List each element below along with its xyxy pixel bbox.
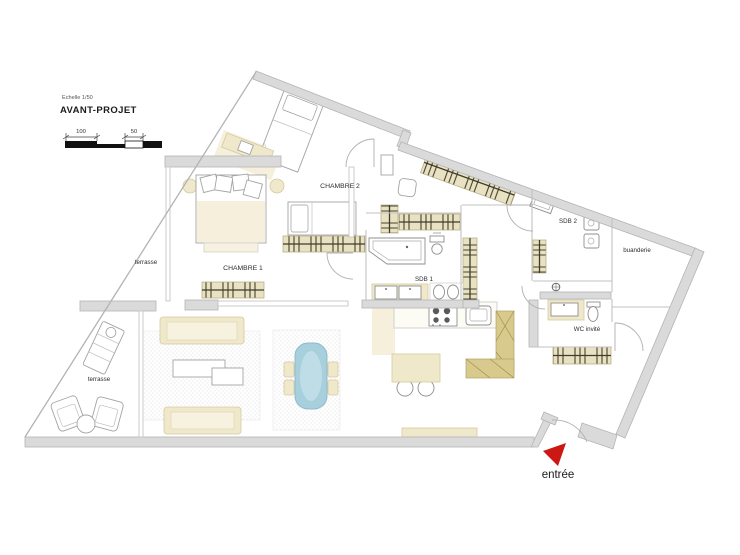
label-wc-invite: WC invité xyxy=(574,326,601,333)
dining-chair xyxy=(328,380,338,395)
sofa-top xyxy=(160,317,244,344)
washbasin-wc xyxy=(548,300,584,320)
wall-kitchen-north xyxy=(362,300,463,308)
kitchen xyxy=(392,302,514,396)
wall-chambre1-south-pier xyxy=(185,300,218,310)
label-sdb-1: SDB 1 xyxy=(415,276,433,283)
label-terrasse-lower: terrasse xyxy=(88,376,111,383)
wall-chambre1-east xyxy=(349,167,354,237)
wardrobe xyxy=(463,238,477,300)
scale-note: Echelle 1/50 xyxy=(62,95,93,101)
window-chambre1-south xyxy=(218,301,348,306)
entrance-arrow-icon xyxy=(543,443,566,466)
wall-right xyxy=(616,248,704,438)
wardrobe xyxy=(553,347,611,364)
bedside-table-left xyxy=(183,179,197,193)
dining-chair xyxy=(284,362,294,377)
label-terrasse-upper: terrasse xyxy=(135,259,158,266)
wall-chambre1-north xyxy=(165,156,281,167)
window-living-west xyxy=(139,311,143,437)
entrance-marker: entrée xyxy=(542,443,575,481)
scale-segment xyxy=(125,141,143,148)
wall-dressing-pier xyxy=(463,300,479,308)
scale-bar: 100 50 xyxy=(63,129,162,148)
side-table xyxy=(381,155,393,175)
chair xyxy=(398,178,417,197)
single-bed-2 xyxy=(288,202,356,235)
wall-bottom xyxy=(25,437,534,447)
terrace-side-table xyxy=(77,415,95,433)
dining-chair xyxy=(328,362,338,377)
bedside-table-right xyxy=(270,179,284,193)
coffee-table-2 xyxy=(212,368,243,385)
pillow xyxy=(215,175,233,192)
kitchen-floor-patch xyxy=(372,302,395,355)
armchair-2 xyxy=(90,396,124,432)
label-chambre-1: CHAMBRE 1 xyxy=(223,265,263,272)
dining-table-glass xyxy=(300,351,322,401)
dining-chair xyxy=(284,380,294,395)
door-buanderie xyxy=(615,323,643,351)
floor-plan-page: CHAMBRE 2 CHAMBRE 1 SDB 1 SDB 2 buanderi… xyxy=(0,0,740,555)
scale-segment xyxy=(97,144,125,148)
scale-dim-50: 50 xyxy=(131,129,137,135)
bed-bench xyxy=(204,243,258,252)
scale-dim-100: 100 xyxy=(76,129,86,135)
wardrobe xyxy=(399,214,460,230)
wall-wc-north xyxy=(540,292,611,299)
door-chambre1 xyxy=(327,253,353,279)
label-entree: entrée xyxy=(542,469,575,481)
door-sdb2 xyxy=(507,205,533,231)
oval-washbasins xyxy=(430,283,463,301)
kitchen-island xyxy=(392,354,440,382)
sun-lounger xyxy=(83,321,125,375)
toilet-sdb1 xyxy=(430,233,444,254)
exterior-walls xyxy=(25,71,704,449)
title-block: Echelle 1/50 AVANT-PROJET 100 50 xyxy=(60,95,162,148)
label-buanderie: buanderie xyxy=(623,247,651,254)
toilet-wc xyxy=(587,302,600,322)
corner-cabinet xyxy=(466,359,514,378)
bathtub-sdb1 xyxy=(369,238,425,264)
kitchen-sink xyxy=(466,306,491,325)
double-bed xyxy=(183,174,284,252)
wardrobe xyxy=(381,205,398,233)
label-chambre-2: CHAMBRE 2 xyxy=(320,183,360,190)
floor-plan-drawing: CHAMBRE 2 CHAMBRE 1 SDB 1 SDB 2 buanderi… xyxy=(0,0,740,555)
interior-walls xyxy=(25,72,670,437)
label-sdb-2: SDB 2 xyxy=(559,218,577,225)
door-chambre2 xyxy=(346,139,374,167)
sofa-bottom xyxy=(164,407,241,434)
wardrobe xyxy=(202,282,264,298)
scale-segment xyxy=(143,141,162,148)
wardrobe xyxy=(283,236,365,252)
drawing-title: AVANT-PROJET xyxy=(60,105,137,116)
terrace-parapet xyxy=(80,301,156,311)
scale-segment xyxy=(65,141,97,148)
double-washbasin xyxy=(372,284,428,301)
window-chambre1-west xyxy=(166,167,170,301)
wardrobe xyxy=(533,240,546,273)
